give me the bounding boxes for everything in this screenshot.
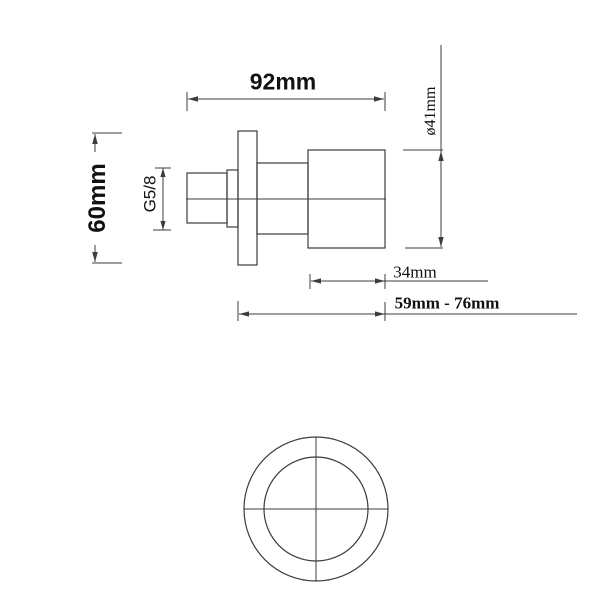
dim-total-length-label: 92mm	[250, 71, 316, 94]
wall-flange-outline	[238, 131, 257, 265]
dim-thread-size-label: G5/8	[142, 176, 159, 213]
dim-body-diameter-label: ø41mm	[423, 87, 439, 136]
front-view	[244, 437, 388, 581]
side-view	[186, 131, 386, 265]
dim-depth-range-label: 59mm - 76mm	[395, 295, 500, 312]
dim-body-diameter	[403, 45, 444, 248]
thread-nipple-outline	[187, 173, 227, 223]
dim-body-length-label: 34mm	[393, 264, 436, 281]
dim-flange-diameter-label: 60mm	[86, 163, 110, 232]
technical-drawing-page: 92mm 60mm G5/8 ø41mm 34mm 59mm - 76mm	[0, 0, 610, 610]
dim-total-length	[187, 92, 385, 111]
